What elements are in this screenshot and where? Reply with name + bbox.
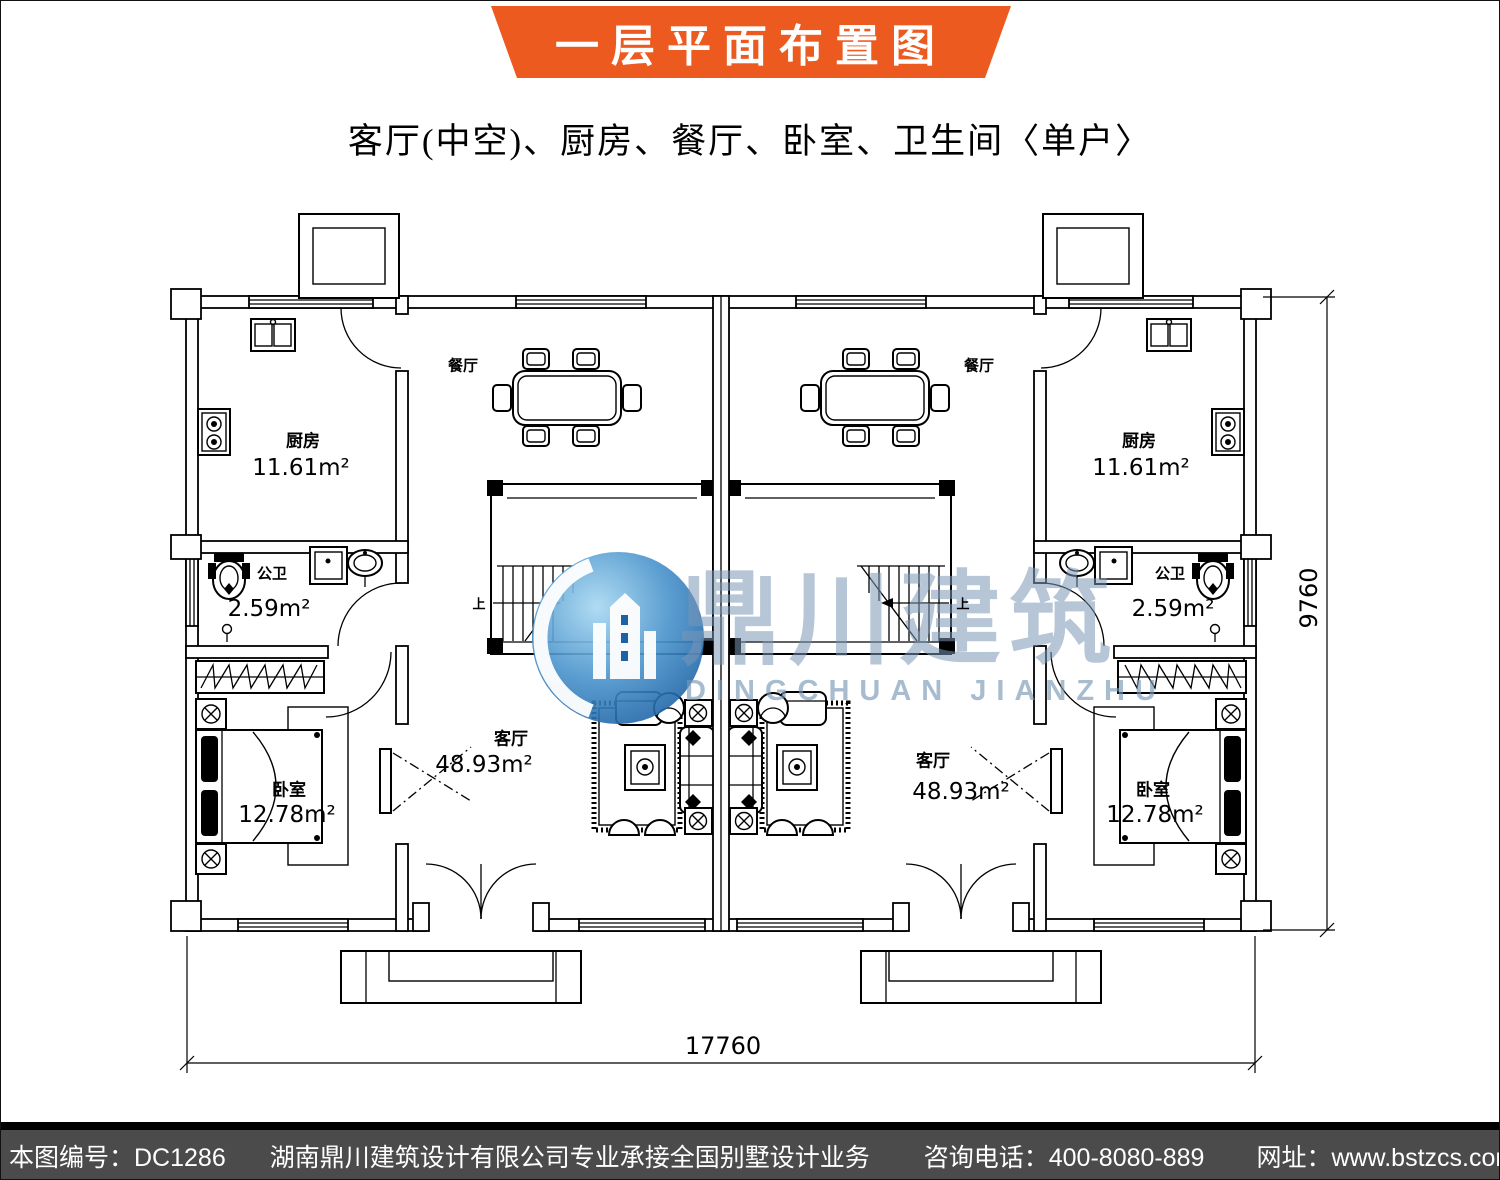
room-area-bath-right: 2.59m² <box>1132 596 1215 622</box>
footer-bar: 本图编号：DC1286 湖南鼎川建筑设计有限公司专业承接全国别墅设计业务 咨询电… <box>1 1130 1499 1180</box>
room-label-living-left: 客厅 <box>494 725 528 750</box>
room-area-kitchen-left: 11.61m² <box>252 455 349 481</box>
page: 一层平面布置图 客厅(中空)、厨房、餐厅、卧室、卫生间〈单户〉 <box>0 0 1500 1180</box>
title-banner: 一层平面布置图 <box>491 6 1011 78</box>
room-label-bath-right: 公卫 <box>1155 563 1185 584</box>
dimension-total-width: 17760 <box>685 1032 761 1060</box>
room-label-living-right: 客厅 <box>916 747 950 772</box>
party-wall <box>713 296 729 931</box>
room-label-dining-left: 餐厅 <box>448 355 478 376</box>
footer-drawing-no: 本图编号：DC1286 <box>9 1138 226 1174</box>
room-area-living-left: 48.93m² <box>435 752 532 778</box>
footer-divider <box>1 1122 1499 1130</box>
room-area-bath-left: 2.59m² <box>228 596 311 622</box>
page-title: 一层平面布置图 <box>555 10 947 74</box>
room-label-kitchen-left: 厨房 <box>286 427 320 452</box>
room-area-bedroom-right: 12.78m² <box>1106 802 1203 828</box>
room-label-bath-left: 公卫 <box>257 563 287 584</box>
room-label-kitchen-right: 厨房 <box>1122 427 1156 452</box>
room-label-dining-right: 餐厅 <box>964 355 994 376</box>
footer-company: 湖南鼎川建筑设计有限公司专业承接全国别墅设计业务 <box>270 1138 870 1174</box>
room-area-kitchen-right: 11.61m² <box>1092 455 1189 481</box>
floor-plan-drawing <box>1 1 1500 1180</box>
footer-website[interactable]: 网址：www.bstzcs.com <box>1256 1138 1500 1174</box>
dimension-total-depth: 9760 <box>1295 567 1323 628</box>
stair-up-label-right: 上 <box>956 594 969 613</box>
stair-up-label-left: 上 <box>472 594 485 613</box>
room-area-bedroom-left: 12.78m² <box>238 802 335 828</box>
room-label-bedroom-left: 卧室 <box>272 776 306 801</box>
footer-phone: 咨询电话：400-8080-889 <box>924 1138 1205 1174</box>
room-label-bedroom-right: 卧室 <box>1136 776 1170 801</box>
page-subtitle: 客厅(中空)、厨房、餐厅、卧室、卫生间〈单户〉 <box>1 113 1499 164</box>
room-area-living-right: 48.93m² <box>912 779 1009 805</box>
